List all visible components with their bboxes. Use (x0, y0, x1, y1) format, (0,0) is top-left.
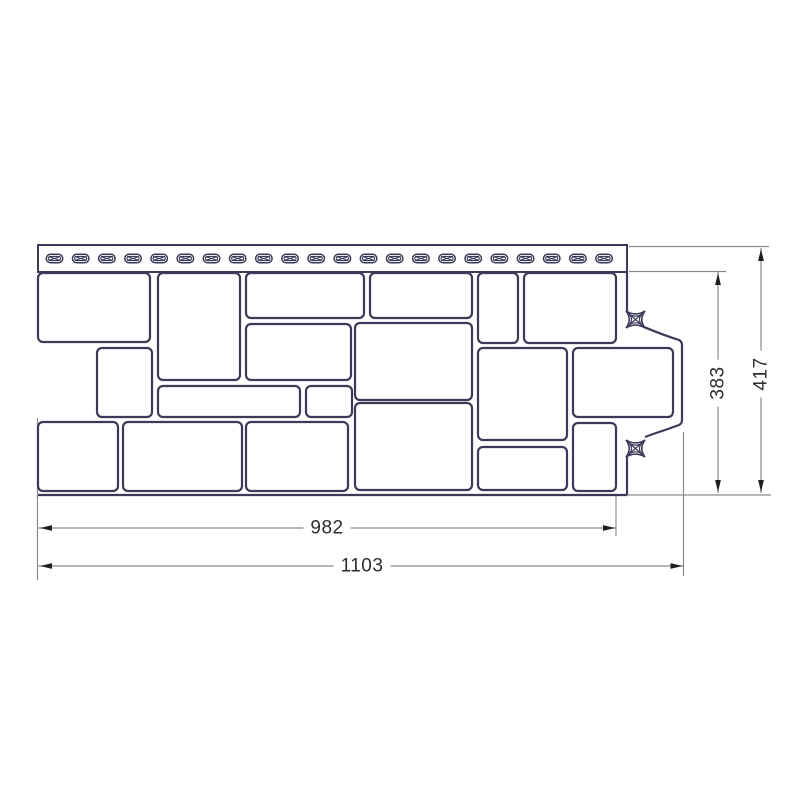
dimension-arrow (603, 525, 615, 531)
stone-block (97, 348, 152, 417)
stone-block (306, 386, 352, 417)
dimension-arrow (758, 480, 764, 492)
dimension-label-inner-height: 383 (708, 359, 729, 406)
stone-block (370, 273, 472, 318)
stone-block (246, 422, 348, 491)
stone-block (38, 273, 150, 342)
stone-block (478, 447, 567, 490)
stone-block (158, 273, 240, 380)
stone-block (38, 422, 118, 491)
dimension-arrow (40, 525, 52, 531)
dimension-arrow (40, 563, 52, 569)
panel-diagram-svg (0, 0, 800, 800)
stone-block (573, 348, 673, 417)
stone-block (246, 273, 364, 318)
stone-block (573, 423, 616, 491)
stone-block (355, 323, 472, 400)
stone-block (478, 348, 567, 440)
drawing-canvas: 982 1103 383 417 (0, 0, 800, 800)
dimension-label-outer-height: 417 (751, 350, 772, 397)
dimension-arrow (758, 249, 764, 261)
dimension-arrow (715, 480, 721, 492)
stone-block (478, 273, 518, 343)
dimension-arrow (671, 563, 683, 569)
dimension-label-inner-width: 982 (303, 518, 350, 539)
stone-block (355, 403, 472, 490)
stone-block (246, 324, 351, 380)
stone-block (158, 386, 300, 417)
stone-block (123, 422, 242, 491)
dimension-label-outer-width: 1103 (334, 556, 391, 577)
dimension-arrow (715, 273, 721, 285)
stone-block (524, 273, 616, 343)
